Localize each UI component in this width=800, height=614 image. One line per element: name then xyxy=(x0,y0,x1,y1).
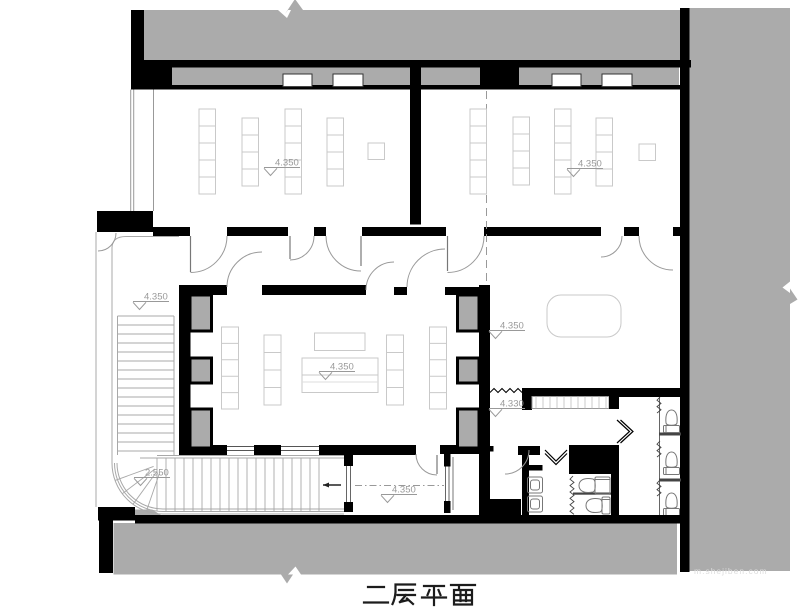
svg-text:4.350: 4.350 xyxy=(275,158,299,169)
svg-text:4.350: 4.350 xyxy=(330,362,354,373)
svg-text:4.350: 4.350 xyxy=(144,292,168,303)
svg-text:4.350: 4.350 xyxy=(500,321,524,332)
svg-text:2.550: 2.550 xyxy=(145,468,169,479)
svg-text:4.350: 4.350 xyxy=(578,159,602,170)
svg-text:m.shejiben.com: m.shejiben.com xyxy=(694,566,768,576)
svg-text:4.350: 4.350 xyxy=(392,485,416,496)
svg-text:4.330: 4.330 xyxy=(500,399,524,410)
